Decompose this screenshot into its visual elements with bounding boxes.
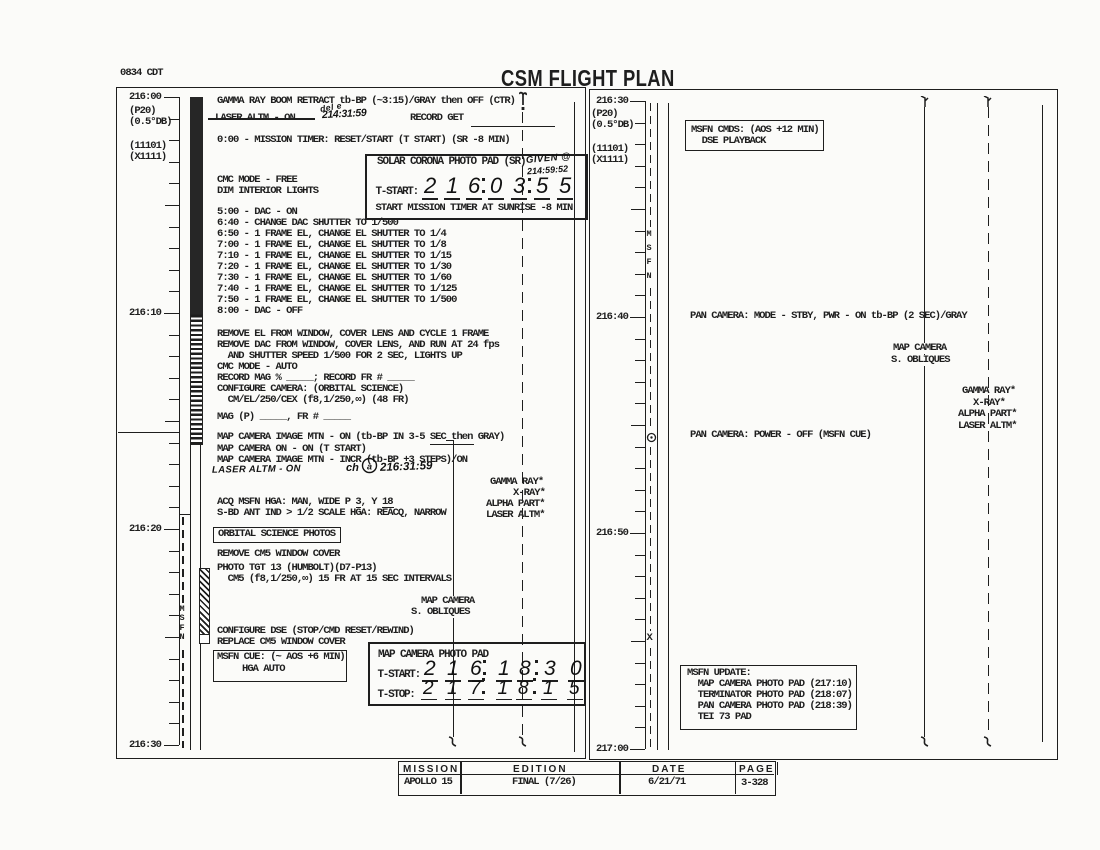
svg-text:a: a: [367, 462, 372, 472]
